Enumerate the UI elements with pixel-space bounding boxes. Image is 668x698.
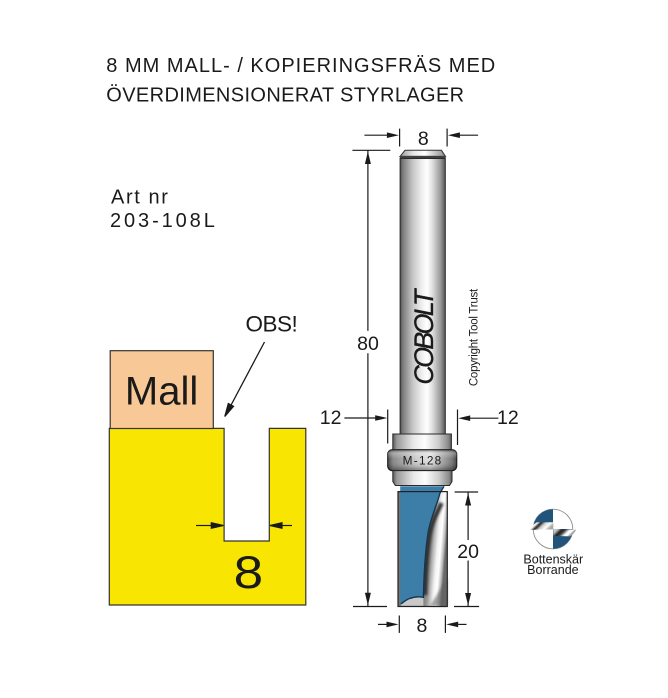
svg-text:8: 8 xyxy=(416,615,427,637)
svg-text:12: 12 xyxy=(320,407,342,429)
svg-text:OBS!: OBS! xyxy=(246,312,298,337)
svg-text:203-108L: 203-108L xyxy=(110,210,218,232)
svg-text:12: 12 xyxy=(497,407,519,429)
svg-text:8: 8 xyxy=(418,128,429,150)
svg-text:20: 20 xyxy=(457,541,479,563)
svg-text:Copyright Tool Trust: Copyright Tool Trust xyxy=(469,288,481,386)
svg-text:M-128: M-128 xyxy=(403,454,443,468)
svg-text:8: 8 xyxy=(234,548,264,598)
svg-text:COBOLT: COBOLT xyxy=(409,287,439,385)
svg-text:Art nr: Art nr xyxy=(111,186,170,208)
svg-text:ÖVERDIMENSIONERAT STYRLAGER: ÖVERDIMENSIONERAT STYRLAGER xyxy=(106,84,464,106)
svg-text:Mall: Mall xyxy=(125,369,198,413)
svg-text:8 MM MALL- / KOPIERINGSFRÄS ME: 8 MM MALL- / KOPIERINGSFRÄS MED xyxy=(106,55,496,77)
svg-text:Borrande: Borrande xyxy=(527,563,578,577)
svg-text:80: 80 xyxy=(357,333,379,355)
